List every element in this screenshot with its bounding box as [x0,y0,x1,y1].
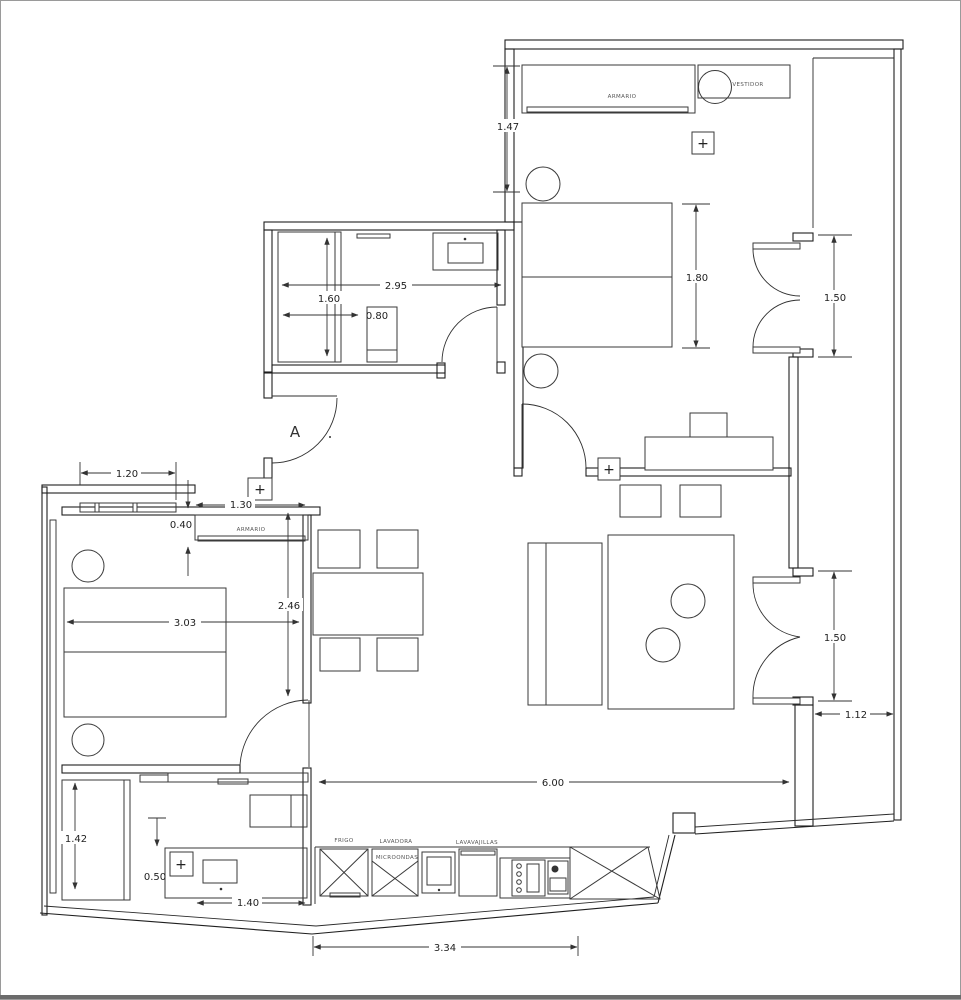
switch-icon: + [254,482,266,498]
bed [522,203,672,347]
window-leaf [753,243,800,249]
oven-knob-dot [438,889,440,891]
dim-shower1-width: 0.80 [366,311,388,322]
wardrobe-hall [522,65,695,113]
tv [690,413,727,437]
washer-label: LAVADORA [380,839,413,845]
window-mullion [95,503,99,512]
kitchen-faucet [552,866,559,873]
dim-bedroom2-depth: 2.46 [278,601,300,612]
dim-window-bottom-right: 1.50 [824,633,846,644]
dim-window-top-right: 1.50 [824,293,846,304]
switch-icon: + [697,136,709,152]
dim-hall-depth: 1.47 [497,122,519,133]
dim-wardrobe-width: 1.30 [230,500,252,511]
window-mullion [133,503,137,512]
dim-bedroom2-window: 1.20 [116,469,138,480]
entrance-door-label: A [290,423,301,441]
faucet-dot [220,888,223,891]
microwave-label: MICROONDAS [376,855,418,861]
dim-bedroom2-width: 3.03 [174,618,196,629]
window-leaf [753,347,800,353]
dim-bath2-depth: 1.42 [65,834,87,845]
window-leaf [753,698,800,704]
dim-kitchen-width: 3.34 [434,943,456,954]
fridge-label: FRIGO [334,838,353,844]
wardrobe-bedroom2-label: ARMARIO [237,527,266,533]
window-leaf [753,577,800,583]
dim-wardrobe-depth: 0.40 [170,520,192,531]
sheet-border [1,1,961,1000]
dim-living-width: 6.00 [542,778,564,789]
floor-plan-page: ARMARIO VESTIDOR + + [0,0,961,1000]
floor-plan-canvas: ARMARIO VESTIDOR + + [0,0,961,1000]
dim-bath1-depth: 1.60 [318,294,340,305]
wardrobe-hall-label: ARMARIO [608,94,637,100]
dim-vanity-depth: 0.50 [144,872,166,883]
dining-table [313,573,423,635]
dim-vanity-width: 1.40 [237,898,259,909]
vestidor-label: VESTIDOR [732,82,763,88]
faucet-dot [464,238,467,241]
switch-icon: + [175,857,187,873]
dishwasher-label: LAVAVAJILLAS [456,840,498,846]
switch-icon: + [603,462,615,478]
sheet-bottom-band [0,995,961,999]
dim-bed1-length: 1.80 [686,273,708,284]
door-handle-dot [329,436,331,438]
dim-bath1-width: 2.95 [385,281,407,292]
dim-balcony-width: 1.12 [845,710,867,721]
sideboard [645,437,773,470]
